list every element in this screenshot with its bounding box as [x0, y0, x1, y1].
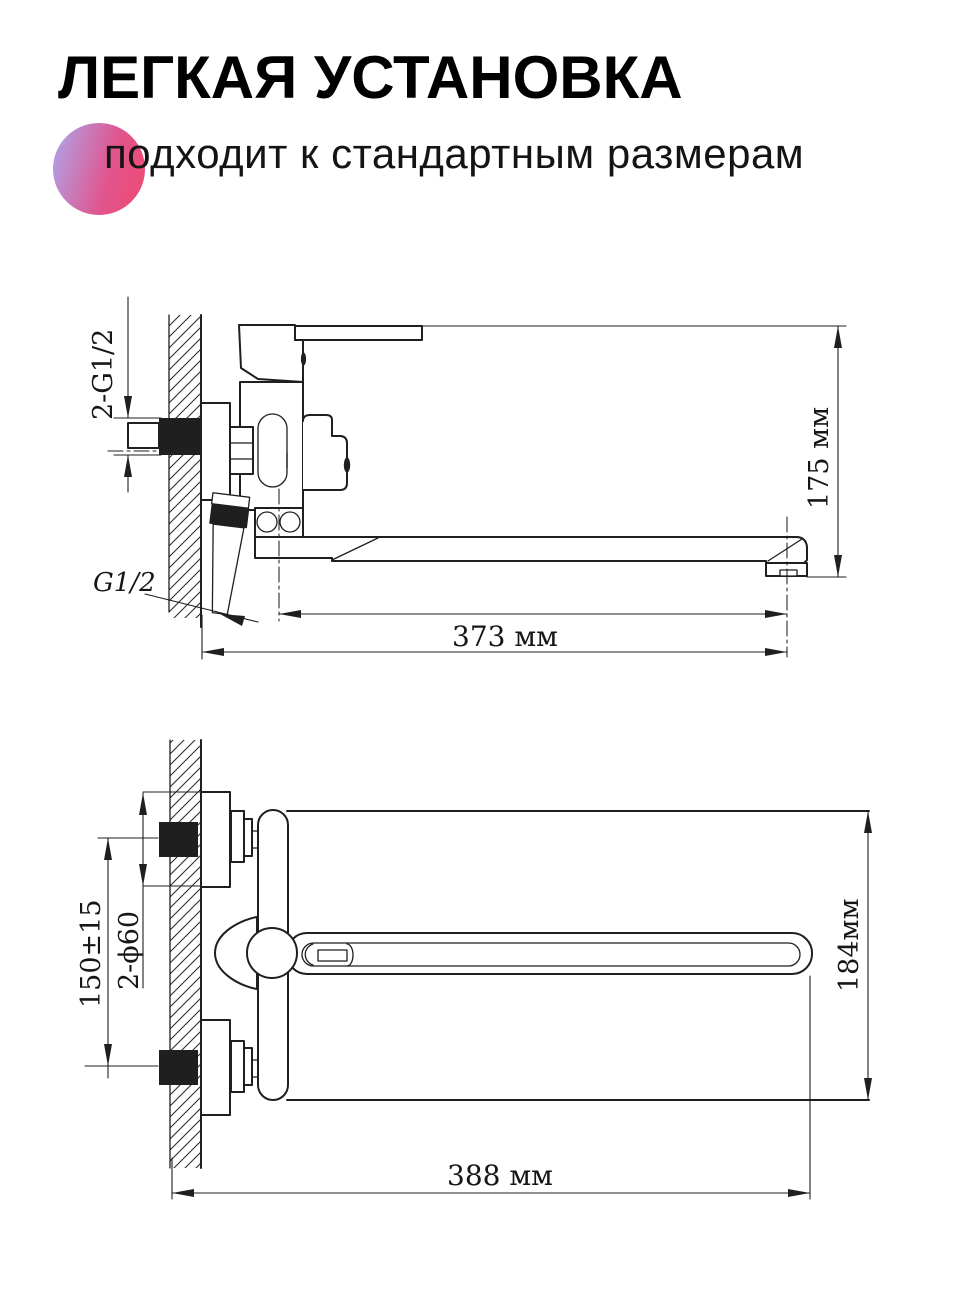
wall-section	[170, 740, 201, 1168]
wall-escutcheon-bottom	[201, 1020, 230, 1115]
spout-reach-label: 373 мм	[452, 620, 558, 653]
shower-holder-bracket	[303, 415, 350, 490]
cartridge-cap-circle	[247, 928, 297, 978]
infographic-page: ЛЕГКАЯ УСТАНОВКА подходит к стандартным …	[0, 0, 975, 1300]
eccentric-connector-top	[159, 822, 198, 857]
escutcheon-label: 2-ϕ60	[114, 911, 145, 990]
overall-length-label: 388 мм	[447, 1159, 553, 1192]
technical-drawings: G1/2 2-G1/2	[0, 0, 975, 1300]
body-slot-detail	[258, 414, 287, 487]
depth-dimension: 184мм	[834, 811, 872, 1100]
handle-pivot-screw	[301, 353, 306, 366]
wall-escutcheon	[201, 403, 230, 500]
wall-escutcheon-top	[201, 792, 230, 887]
hose-thread-label: G1/2	[93, 568, 156, 598]
depth-label: 184мм	[834, 898, 865, 992]
inlet-spacing-label: 150±15	[76, 899, 107, 1008]
inlet-pipe-stub	[128, 423, 159, 448]
mounting-nut-top	[231, 811, 258, 862]
eccentric-connector-bottom	[159, 1050, 198, 1085]
valve-cap	[239, 325, 303, 382]
inlet-thread-label: 2-G1/2	[88, 329, 119, 420]
inlet-thread-dimension: 2-G1/2	[88, 297, 161, 492]
eccentric-connector	[159, 418, 201, 455]
mounting-nut-bottom	[231, 1041, 258, 1092]
mounting-nut	[230, 427, 253, 474]
side-view-drawing: G1/2 2-G1/2	[88, 297, 846, 659]
shower-hose	[198, 493, 250, 616]
handle-lever	[295, 326, 422, 340]
plan-view-drawing: 150±15 2-ϕ60 184мм	[76, 740, 872, 1199]
spout	[255, 537, 807, 576]
handle-inner-detail	[302, 943, 800, 966]
height-label: 175 мм	[804, 407, 835, 509]
wall-section	[169, 315, 201, 627]
spout-reach-dimension: 373 мм	[202, 610, 787, 659]
